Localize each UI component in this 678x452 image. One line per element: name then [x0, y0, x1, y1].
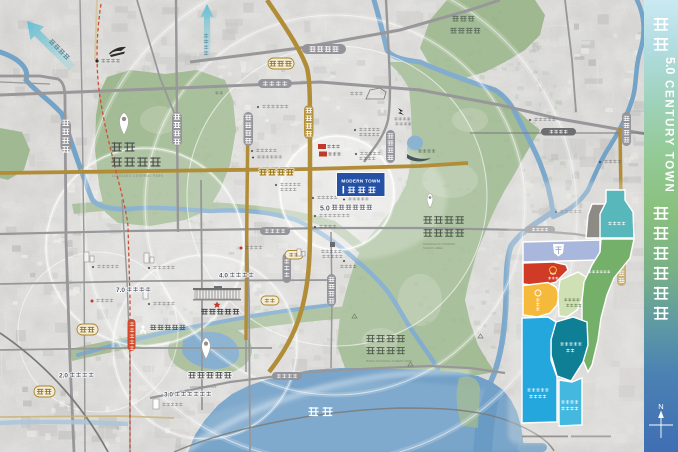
svg-text:N: N [658, 402, 663, 411]
svg-text:5.0: 5.0 [663, 57, 677, 74]
svg-text:5.0: 5.0 [320, 206, 330, 213]
svg-text:FANGXINGHU PARK: FANGXINGHU PARK [190, 385, 217, 389]
svg-text:CENTURY TOWN: CENTURY TOWN [663, 80, 675, 193]
svg-text:2.0: 2.0 [59, 373, 68, 380]
svg-text:BINHU NATIONAL FOREST PARK: BINHU NATIONAL FOREST PARK [366, 359, 413, 363]
svg-text:MODERN TOWN: MODERN TOWN [341, 179, 380, 184]
svg-text:SCENIC AREA: SCENIC AREA [423, 246, 443, 250]
svg-text:4.0: 4.0 [219, 273, 228, 280]
svg-text:3.0: 3.0 [164, 392, 173, 399]
svg-text:7.0: 7.0 [116, 287, 125, 294]
svg-text:LUOGANG CENTRAL PARK: LUOGANG CENTRAL PARK [112, 174, 164, 178]
